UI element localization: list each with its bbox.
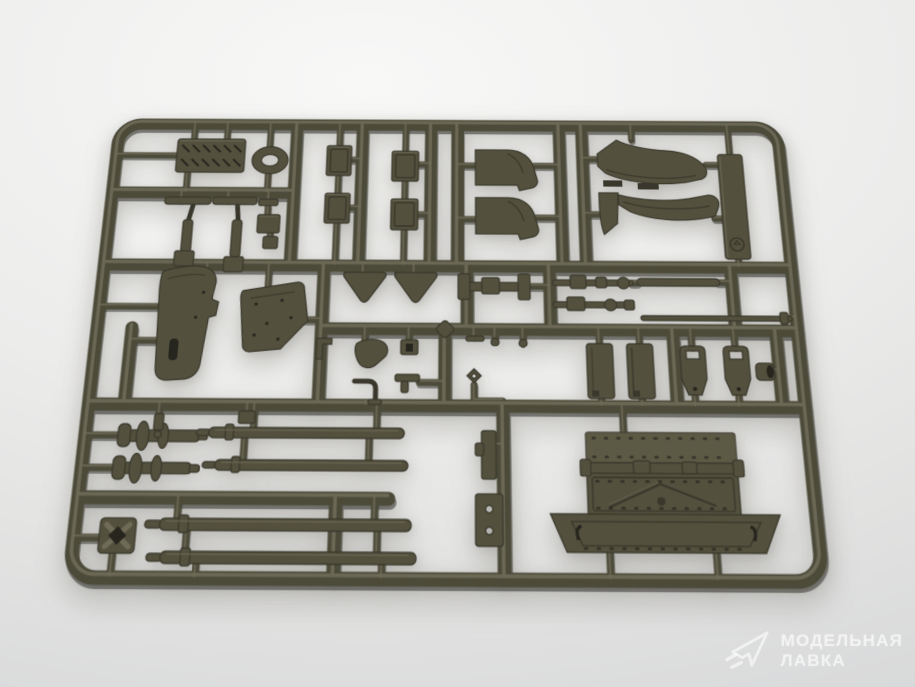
fender-part (476, 198, 539, 240)
sprue-photo (52, 112, 839, 598)
t-bracket-part (395, 374, 420, 392)
studio-background: МОДЕЛЬНАЯ ЛАВКА (0, 0, 915, 687)
linkage-rod-part (553, 297, 635, 311)
thin-rod-part (641, 312, 793, 324)
hatch-door-part (324, 193, 350, 223)
ring-eyelet-part (467, 369, 481, 383)
sprue (52, 112, 839, 598)
track-section-part (175, 139, 246, 173)
tall-hatch-part (626, 344, 655, 399)
bracket-column-part (475, 431, 496, 479)
watermark-text: МОДЕЛЬНАЯ ЛАВКА (781, 631, 903, 671)
barrel-rod-part (202, 456, 408, 473)
shield-hatch-part (723, 346, 752, 395)
lever-arm-part (159, 197, 211, 266)
long-fender-part (599, 193, 721, 235)
cylinder-part (755, 363, 775, 380)
hatch-door-part (392, 151, 419, 181)
hatch-door-part (326, 146, 352, 176)
watermark-line2: ЛАВКА (781, 651, 903, 671)
armor-plate-part (237, 282, 310, 352)
long-fender-part (597, 140, 708, 190)
fender-part (475, 150, 537, 191)
h-connector-part (458, 274, 530, 300)
plate-two-holes-part (475, 494, 503, 546)
watermark-line1: МОДЕЛЬНАЯ (781, 631, 903, 651)
linkage-rod-part (552, 275, 633, 289)
wheel-hub-part (111, 453, 200, 483)
armor-plate-part (151, 266, 221, 380)
hull-box-part (548, 432, 783, 553)
hatch-door-part (390, 199, 418, 230)
tall-hatch-part (586, 344, 615, 399)
oval-ring-part (251, 147, 289, 174)
small-elbow-part (238, 411, 255, 423)
flat-bar-part (717, 155, 751, 260)
triangle-bracket-part (394, 272, 437, 302)
watermark: МОДЕЛЬНАЯ ЛАВКА (723, 629, 903, 673)
paper-plane-icon (723, 629, 771, 673)
blob-bracket-part (355, 339, 388, 368)
notched-block-part (401, 340, 418, 355)
towing-bar-part (637, 278, 720, 286)
triangle-bracket-part (342, 272, 386, 302)
cross-joint-part (97, 518, 137, 553)
